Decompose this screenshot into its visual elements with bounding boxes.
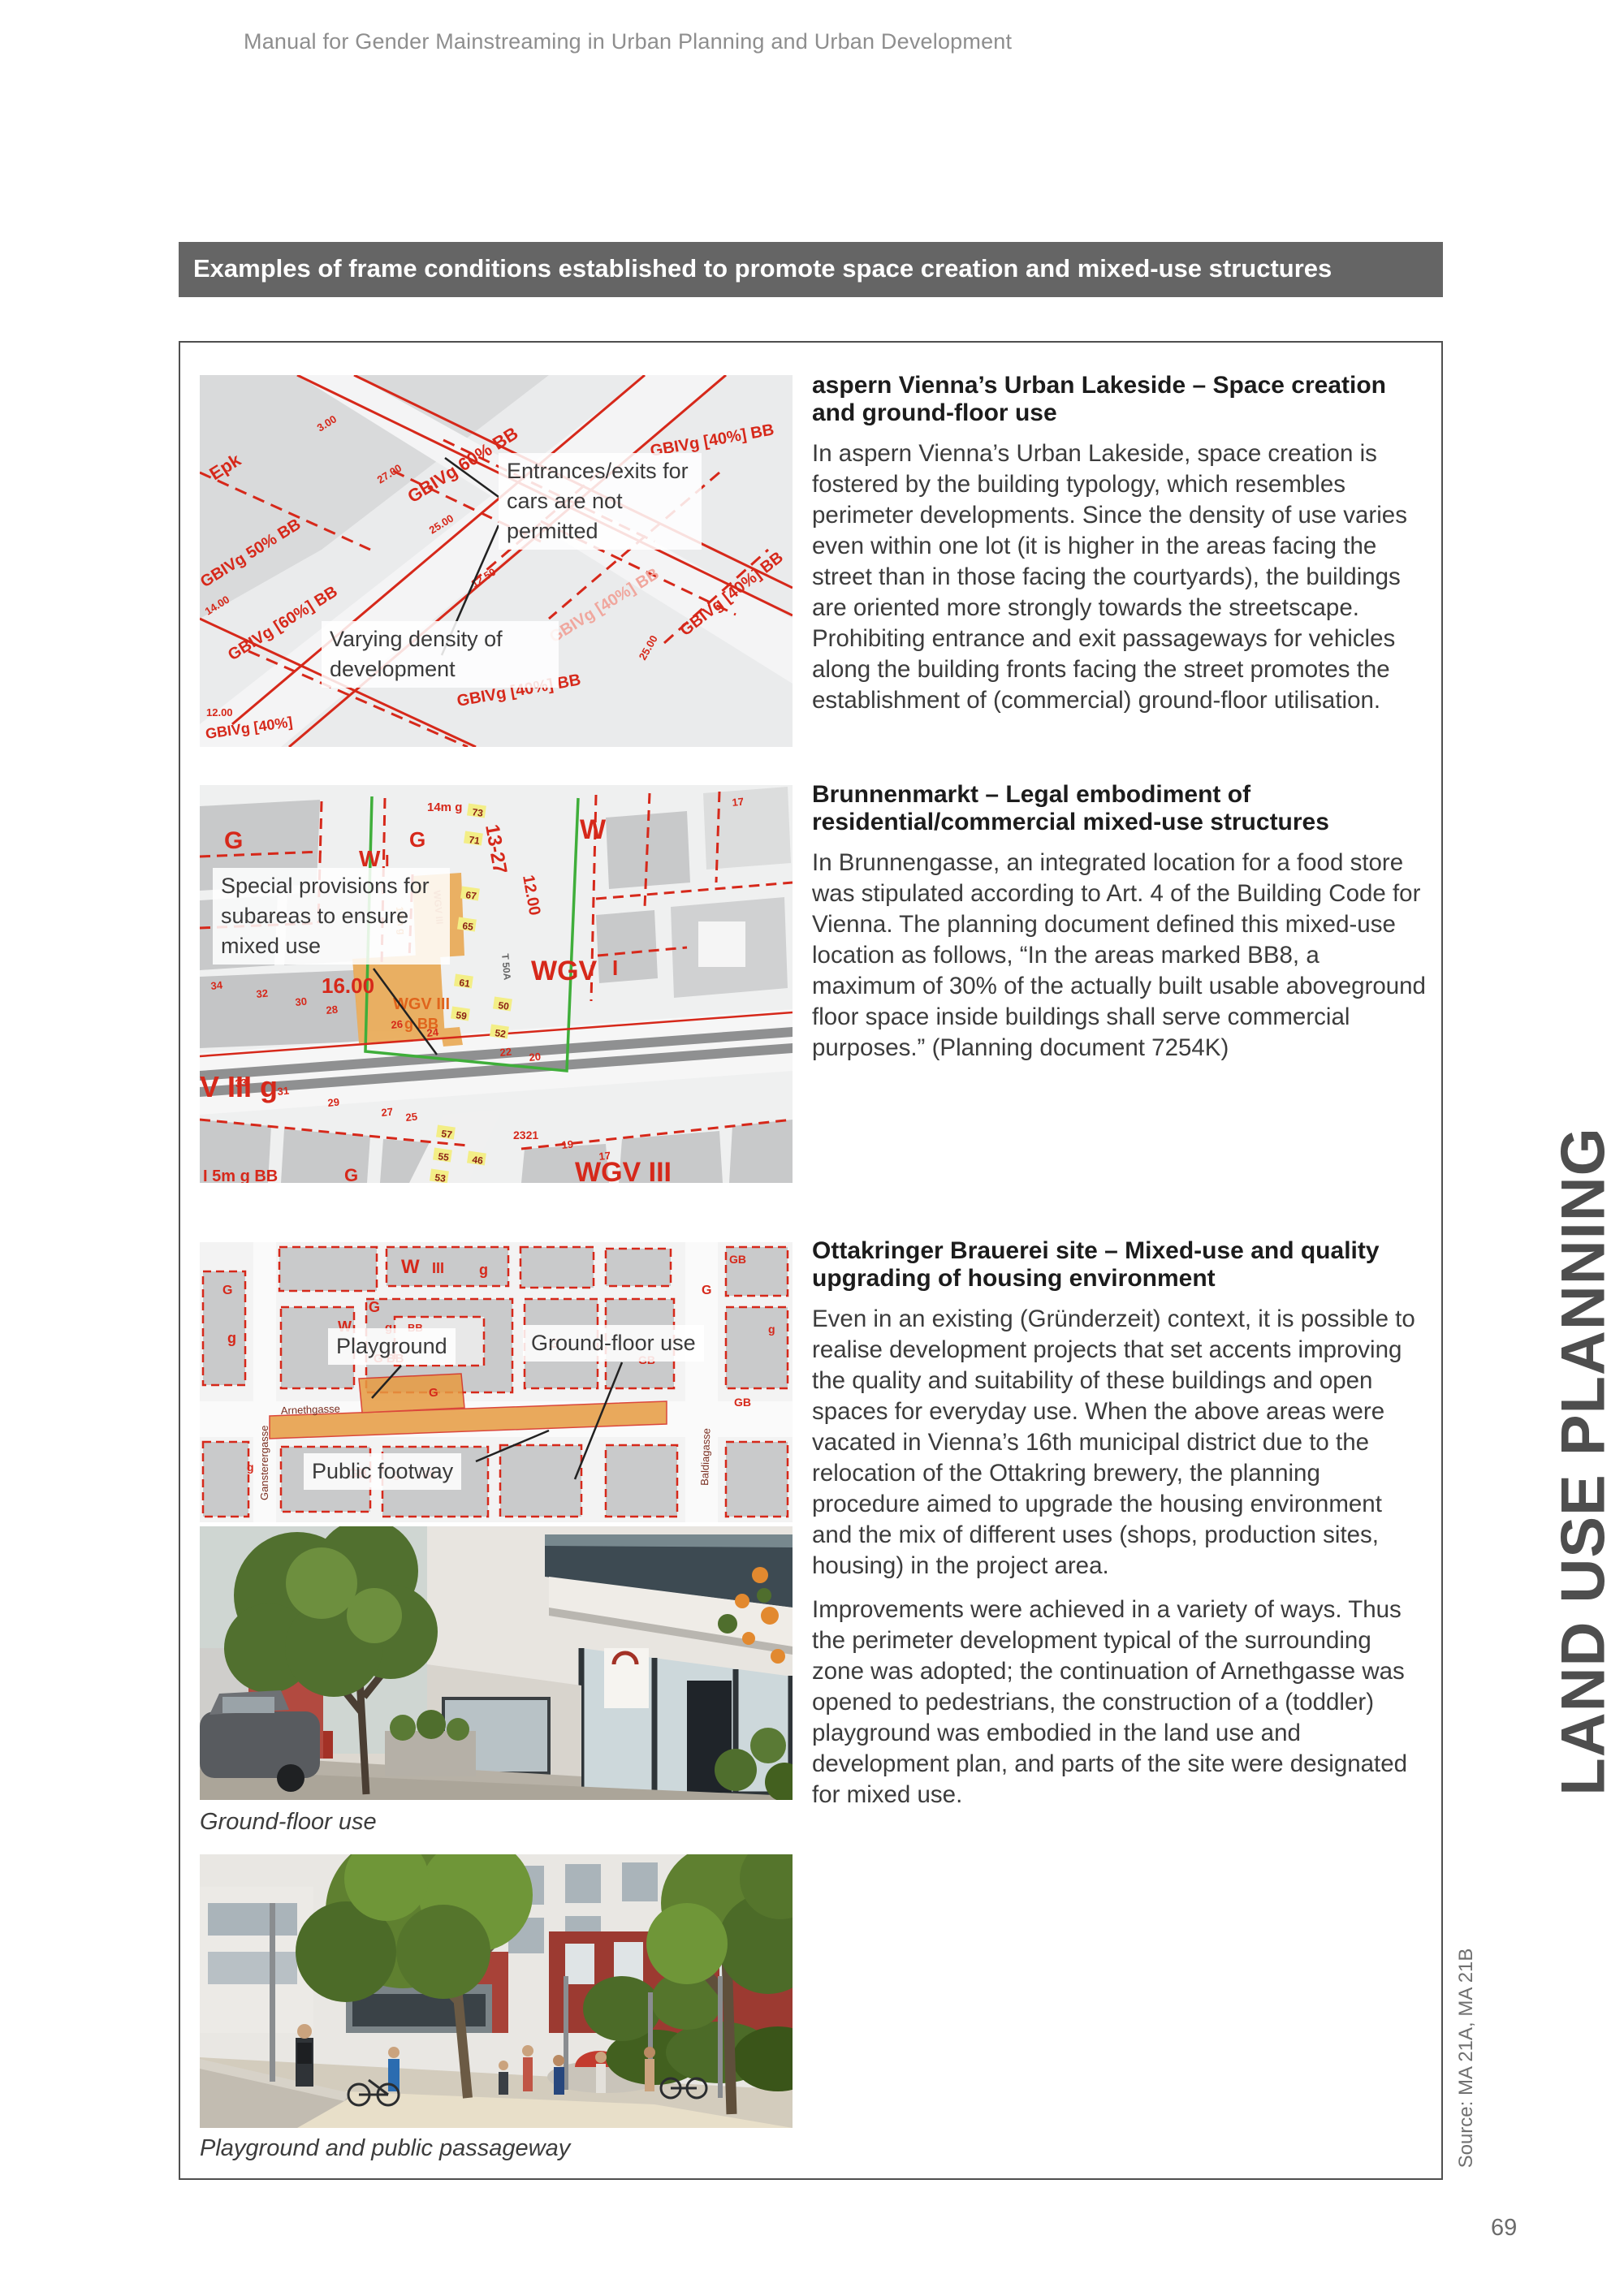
zone-code: T 50A: [499, 953, 513, 981]
zone-code: g: [227, 1330, 236, 1346]
map-ottakringer-drawing: W III g G W g BB G BB G G g GB G g GB GB…: [200, 1242, 793, 1522]
section-banner: Examples of frame conditions established…: [179, 242, 1443, 297]
house-number: 30: [295, 995, 308, 1008]
house-number: 27: [381, 1106, 394, 1119]
house-number: 17: [732, 796, 745, 809]
house-number: 19: [561, 1138, 574, 1151]
zone-code: W: [580, 814, 607, 845]
zone-code: G: [344, 1165, 358, 1183]
annotation-playground: Playground: [328, 1328, 456, 1365]
chapter-side-label: LAND USE PLANNING: [1548, 1127, 1619, 1795]
source-note: Source: MA 21A, MA 21B: [1455, 1949, 1478, 2169]
dim-label: 12.00: [206, 706, 233, 719]
annotation-varying-density: Varying density of development: [322, 621, 559, 688]
tree-canopy: [224, 1526, 438, 1697]
annotation-ground-floor-use: Ground-floor use: [523, 1325, 704, 1362]
map-brunnenmarkt-drawing: 73 71 67 65 61 59 57 55 53 50 52 46 G W …: [200, 785, 793, 1183]
street-number: 65: [462, 920, 474, 933]
running-header: Manual for Gender Mainstreaming in Urban…: [244, 29, 1012, 54]
zone-code: III: [432, 1260, 444, 1276]
house-number: 34: [210, 978, 224, 992]
street-name-gansterergasse: Gansterergasse: [258, 1426, 270, 1501]
section-brunnenmarkt-heading: Brunnenmarkt – Legal embodiment of resid…: [812, 781, 1427, 836]
section-aspern: aspern Vienna’s Urban Lakeside – Space c…: [812, 372, 1427, 716]
section-aspern-heading: aspern Vienna’s Urban Lakeside – Space c…: [812, 372, 1427, 427]
house-number: 32: [256, 987, 269, 1000]
zone-code: WGV III: [575, 1157, 672, 1183]
zone-code: GB: [734, 1396, 751, 1409]
house-number: 33: [235, 1077, 248, 1090]
zone-code: G: [702, 1284, 711, 1297]
zone-code: GB: [729, 1253, 746, 1266]
zone-code: g: [768, 1323, 775, 1336]
photo-playground-passageway: [200, 1854, 793, 2128]
section-brunnenmarkt: Brunnenmarkt – Legal embodiment of resid…: [812, 781, 1427, 1064]
section-ottakringer-heading: Ottakringer Brauerei site – Mixed-use an…: [812, 1237, 1427, 1293]
section-ottakringer-body-2: Improvements were achieved in a variety …: [812, 1595, 1427, 1810]
page-number: 69: [1491, 2215, 1517, 2242]
map-ottakringer-plan: W III g G W g BB G BB G G g GB G g GB GB…: [200, 1242, 793, 1522]
street-number: 71: [469, 834, 481, 847]
zone-code: G: [429, 1386, 438, 1400]
street-number: 61: [459, 977, 471, 990]
annotation-public-footway: Public footway: [304, 1453, 461, 1490]
house-number: 25: [405, 1111, 418, 1124]
street-name-arnethgasse: Arnethgasse: [281, 1402, 340, 1417]
zone-code: g: [247, 1461, 254, 1474]
street-number: 53: [434, 1172, 447, 1183]
zone-code: W: [401, 1256, 420, 1278]
section-ottakringer: Ottakringer Brauerei site – Mixed-use an…: [812, 1237, 1427, 1810]
street-number: 59: [456, 1009, 468, 1022]
photo-playground-drawing: [200, 1854, 793, 2128]
section-ottakringer-body-1: Even in an existing (Gründerzeit) contex…: [812, 1304, 1427, 1582]
section-brunnenmarkt-body: In Brunnengasse, an integrated location …: [812, 848, 1427, 1064]
house-number: 26: [391, 1018, 404, 1031]
map-aspern-zoning-plan: Epk GBIVg 50% BB GBIVg 60% BB GBIVg [40%…: [200, 375, 793, 747]
section-aspern-body: In aspern Vienna’s Urban Lakeside, space…: [812, 438, 1427, 716]
annotation-special-provisions: Special provisions for subareas to ensur…: [213, 868, 450, 965]
zone-code: I 5m g BB: [203, 1167, 278, 1183]
caption-playground-passageway: Playground and public passageway: [200, 2135, 570, 2162]
street-number: 52: [495, 1027, 507, 1040]
annotation-entrances-exits: Entrances/exits for cars are not permitt…: [499, 453, 702, 550]
street-number: 73: [472, 806, 484, 819]
banner-title: Examples of frame conditions established…: [193, 254, 1332, 283]
caption-ground-floor-use: Ground-floor use: [200, 1809, 377, 1836]
house-number: 22: [499, 1046, 512, 1059]
content-box: Epk GBIVg 50% BB GBIVg 60% BB GBIVg [40%…: [179, 341, 1443, 2180]
house-number: 17: [598, 1150, 611, 1163]
street-number: 55: [438, 1150, 450, 1163]
street-name-baldiagasse: Baldiagasse: [698, 1428, 712, 1486]
house-number: 31: [277, 1085, 290, 1098]
house-number: 2321: [513, 1129, 538, 1142]
zone-code: G: [222, 1284, 232, 1297]
zone-code: 16.00: [322, 973, 374, 998]
street-number: 46: [472, 1154, 484, 1167]
zone-code: G: [409, 827, 425, 852]
zone-code: g: [479, 1262, 488, 1278]
house-number: 20: [529, 1051, 542, 1064]
map-brunnenmarkt-plan: 73 71 67 65 61 59 57 55 53 50 52 46 G W …: [200, 785, 793, 1183]
map-aspern-drawing: Epk GBIVg 50% BB GBIVg 60% BB GBIVg [40%…: [200, 375, 793, 747]
zone-code: I: [612, 956, 618, 980]
zone-code: 14m g: [427, 801, 462, 814]
street-number: 50: [498, 999, 510, 1012]
street-number: 57: [441, 1128, 453, 1141]
house-number: 28: [326, 1003, 339, 1016]
street-number: 67: [465, 889, 477, 902]
zone-code: WGV III: [393, 995, 450, 1013]
photo-ground-floor-use: [200, 1526, 793, 1800]
zone-code: WGV: [531, 956, 598, 986]
zone-code: G: [224, 827, 243, 854]
photo-ground-floor-drawing: [200, 1526, 793, 1800]
house-number: 29: [327, 1096, 340, 1109]
zone-code: G: [369, 1299, 380, 1315]
house-number: 24: [426, 1025, 440, 1039]
